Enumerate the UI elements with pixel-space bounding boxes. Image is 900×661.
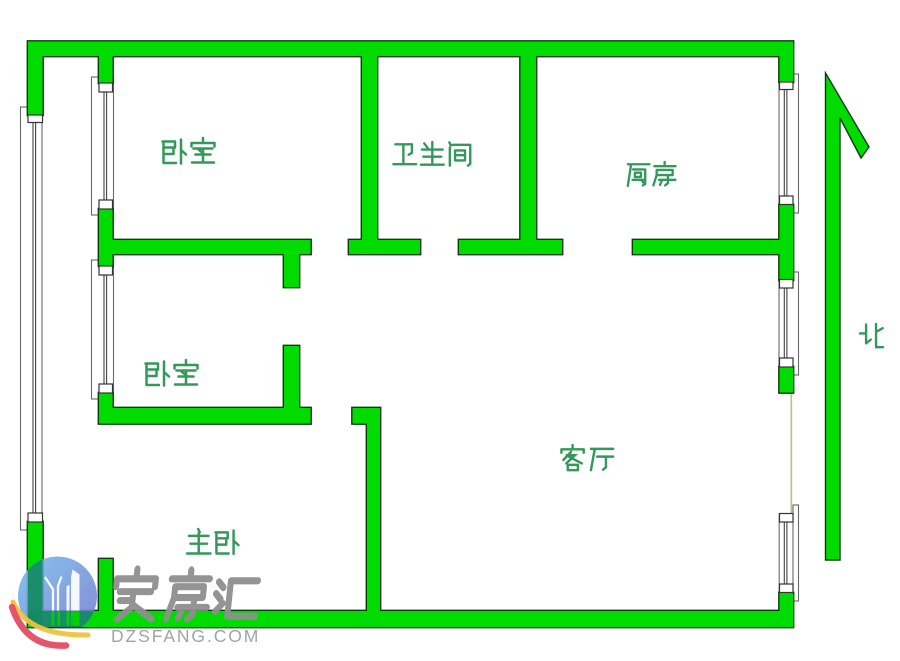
svg-text:DZSFANG.COM: DZSFANG.COM (111, 626, 260, 646)
